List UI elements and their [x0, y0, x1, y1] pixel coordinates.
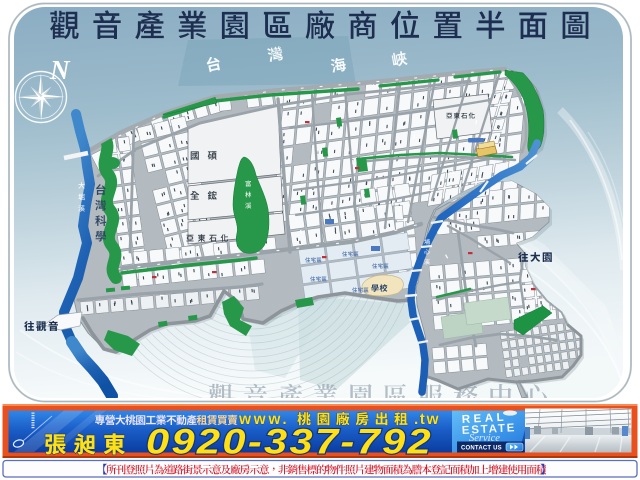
svg-text:0920-337-792: 0920-337-792: [146, 422, 433, 462]
svg-text:N: N: [49, 55, 71, 85]
svg-text:CONTACT US: CONTACT US: [461, 446, 502, 452]
